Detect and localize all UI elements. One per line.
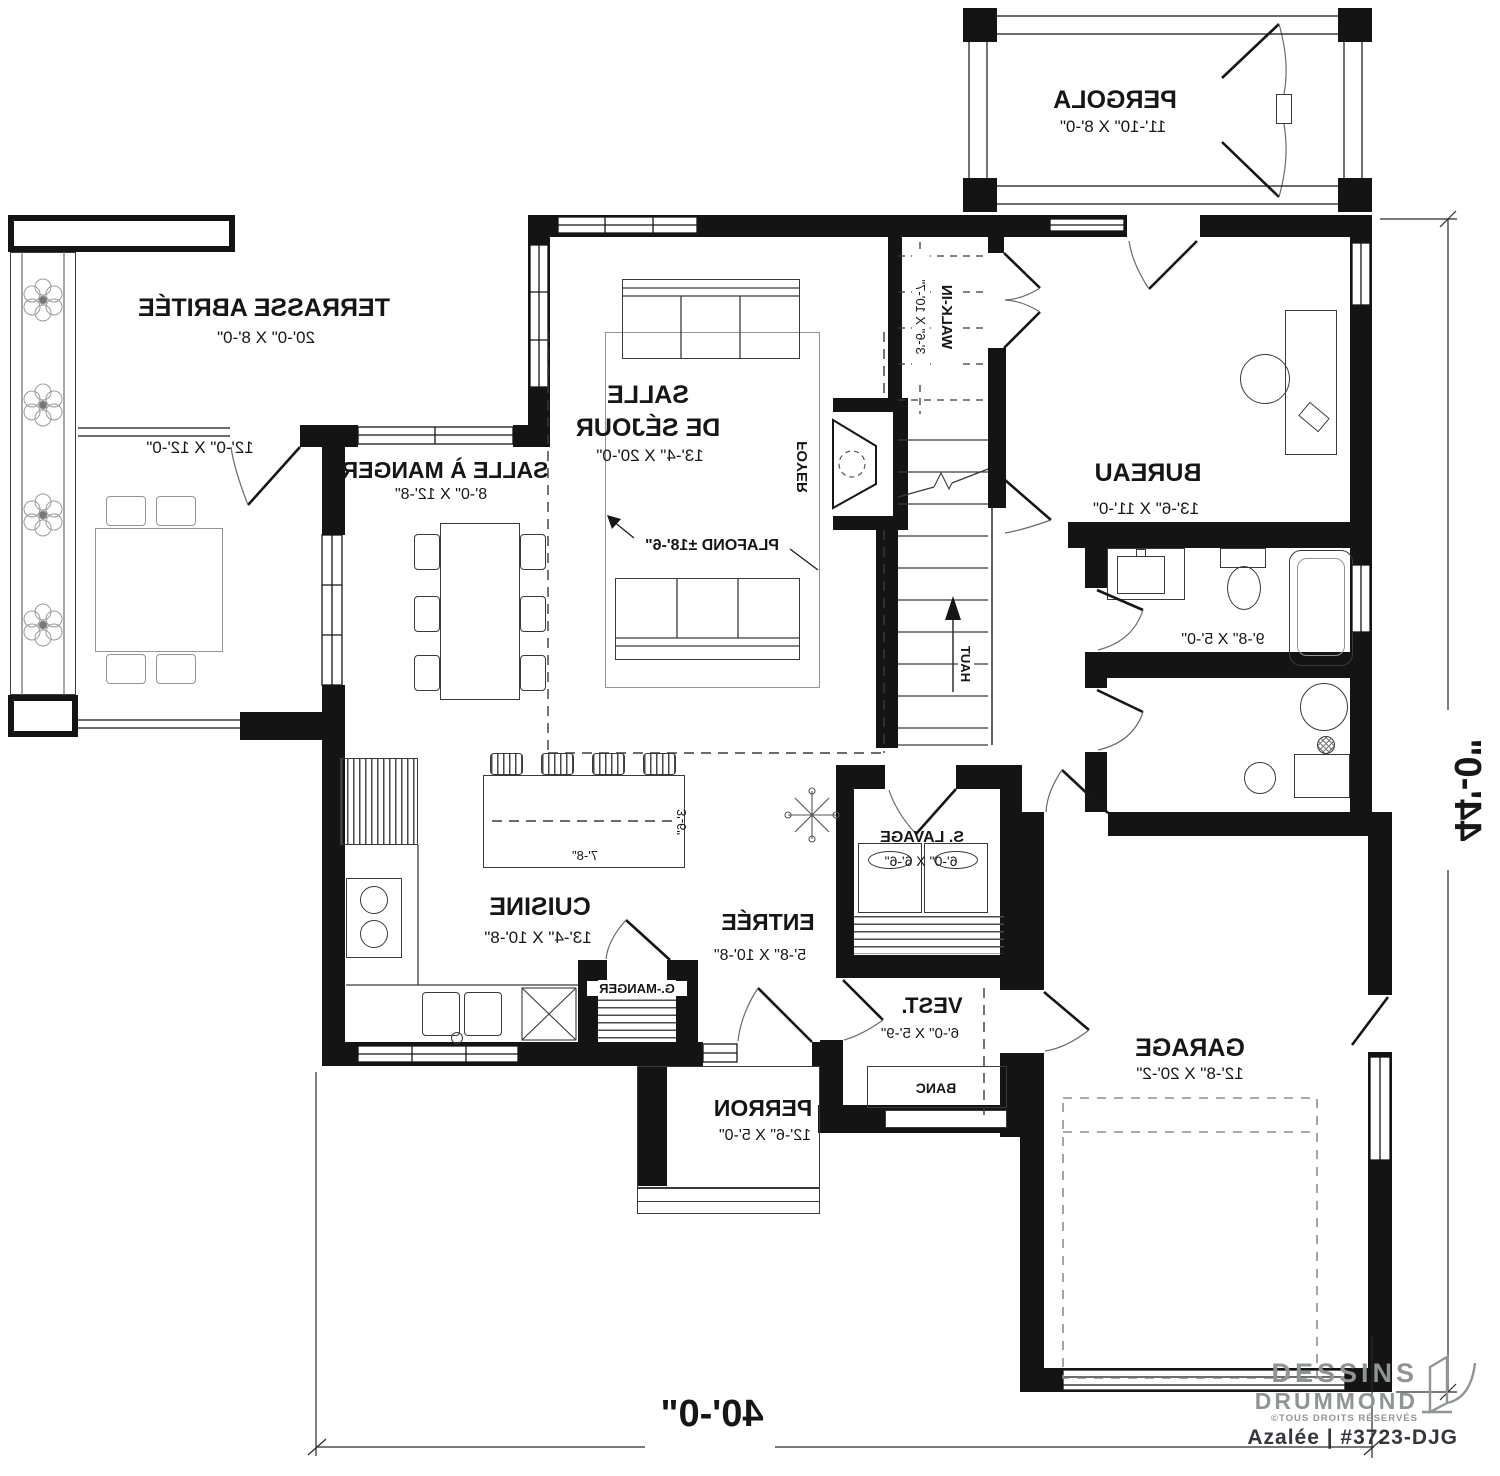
door-leaves	[248, 24, 1388, 1045]
room-dim-pergola: 11'-10" X 8'-0"	[1013, 116, 1213, 136]
room-label-terrasse: TERRASSE ABRITÉE	[114, 295, 414, 321]
room-dim-sejour: 13'-4" X 20'-0"	[550, 445, 750, 465]
room-label-manger: SALLE À MANGER	[335, 458, 555, 482]
floor-plan: PERGOLA 11'-10" X 8'-0" TERRASSE ABRITÉE…	[0, 0, 1500, 1476]
room-dim-slavage: 6'-0" X 6'-6"	[846, 853, 996, 869]
window-glyphs	[322, 217, 1394, 1390]
room-dim-entree: 5'-8" X 10'-8"	[660, 947, 860, 965]
car-outline-dashed	[1063, 1098, 1317, 1378]
room-label-perron: PERRON	[663, 1096, 863, 1120]
pantry-label: G.-MANGER	[587, 981, 687, 996]
ceiling-note-plafond: PLAFOND ±18'-6"	[612, 536, 812, 556]
dishwasher-x	[522, 988, 576, 1040]
room-dim-manger: 8'-0" X 12'-8"	[341, 486, 541, 504]
island-depth-dim: 3'-6"	[674, 792, 688, 852]
logo-rights: ©TOUS DROITS RÉSERVÉS	[1150, 1414, 1418, 1424]
logo-model: Azalée | #3723-DJG	[1150, 1427, 1458, 1448]
room-dim-vest: 6'-0" X 5'-9"	[845, 1025, 995, 1041]
room-dim-garage: 12'-8" X 20'-2"	[1090, 1063, 1290, 1083]
room-label-walkin: WALK-IN	[937, 257, 957, 377]
room-label-foyer: FOYER	[793, 427, 811, 507]
room-label-vest: VEST.	[857, 994, 1007, 1018]
bench-label: BANC	[861, 1080, 1011, 1096]
room-dim-perron: 12'-6" X 5'-0"	[665, 1127, 865, 1145]
room-dim-bain: 9'-8" X 5'-0"	[1123, 631, 1323, 649]
room-dim-terrasse-lower: 12'-0" X 12'-0"	[100, 437, 300, 457]
entree-plant	[785, 788, 839, 842]
room-label-slavage: S. LAVAGE	[847, 829, 997, 847]
room-label-cuisine: CUISINE	[440, 894, 640, 920]
island-width-dim: 7'-8"	[535, 848, 635, 862]
room-label-garage: GARAGE	[1090, 1035, 1290, 1061]
room-dim-terrasse: 20'-0" X 8'-0"	[166, 327, 366, 347]
logo-dessins: DESSINS	[1150, 1360, 1418, 1387]
room-label-bureau: BUREAU	[1048, 460, 1248, 486]
room-label-entree: ENTRÉE	[668, 910, 868, 934]
planter-flowers	[24, 279, 62, 646]
overall-depth-dim: 44'-0"	[1445, 710, 1489, 870]
room-dim-cuisine: 13'-4" X 10'-8"	[438, 927, 638, 947]
stairs-label-haut: HAUT	[958, 634, 974, 694]
room-dim-walkin: 3'-6" X 10'-7"	[912, 252, 930, 382]
sofa-lines	[615, 288, 800, 646]
terrace-screen-lines	[22, 252, 240, 728]
plafond-leader-arrowhead	[607, 515, 621, 529]
overall-width-dim: 40'-0"	[612, 1392, 812, 1436]
room-label-sejour-2: DE SÉJOUR	[548, 415, 748, 441]
plan-linework	[0, 0, 1500, 1476]
room-label-pergola: PERGOLA	[1015, 87, 1215, 113]
room-dim-bureau: 13'-6" X 11'-0"	[1046, 498, 1246, 518]
room-label-sejour-1: SALLE	[548, 382, 748, 408]
logo-drummond: DRUMMOND	[1150, 1390, 1418, 1413]
